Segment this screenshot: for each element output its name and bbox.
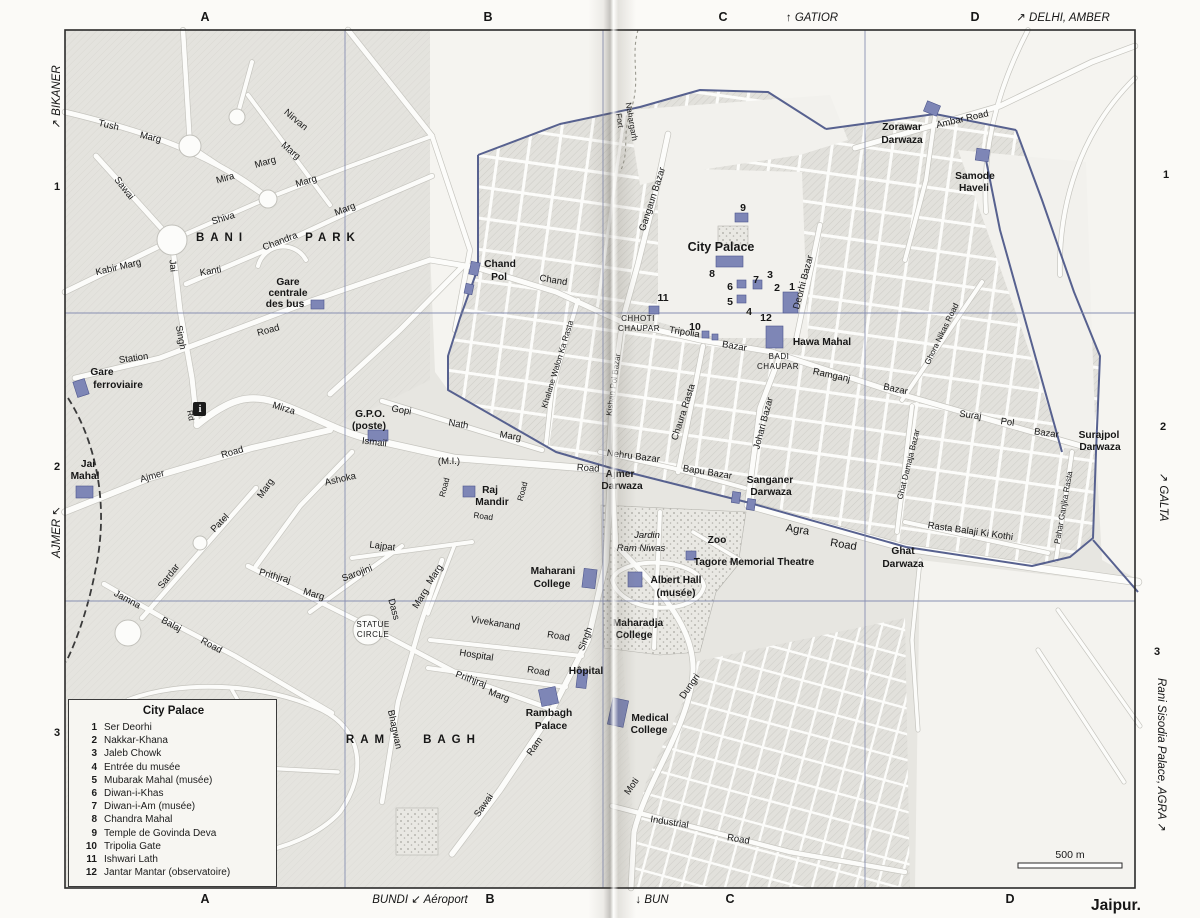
landmark-marker bbox=[735, 213, 748, 222]
legend-item-number: 9 bbox=[77, 827, 97, 840]
landmark-marker bbox=[464, 283, 474, 294]
map-label: Hawa Mahal bbox=[793, 337, 851, 348]
map-label: Rambagh bbox=[526, 708, 572, 719]
legend-item: 9Temple de Govinda Deva bbox=[77, 827, 270, 840]
legend-item-label: Tripolia Gate bbox=[104, 840, 161, 853]
legend-item: 12Jantar Mantar (observatoire) bbox=[77, 866, 270, 879]
rambagh-stipple-block bbox=[396, 808, 438, 855]
map-label: (M.I.) bbox=[438, 456, 460, 467]
map-label: Darwaza bbox=[750, 487, 792, 498]
legend-item: 2Nakkar-Khana bbox=[77, 734, 270, 747]
map-label: 4 bbox=[746, 306, 752, 318]
map-label: Darwaza bbox=[881, 135, 923, 146]
landmark-marker bbox=[311, 300, 324, 309]
legend-list: 1Ser Deorhi2Nakkar-Khana3Jaleb Chowk4Ent… bbox=[77, 721, 270, 879]
map-label: Maharani bbox=[531, 566, 576, 577]
map-label: B bbox=[485, 892, 494, 906]
map-label: 3 bbox=[54, 727, 60, 739]
legend-item: 4Entrée du musée bbox=[77, 761, 270, 774]
map-label: i bbox=[199, 404, 202, 415]
map-label: Raj bbox=[482, 485, 498, 496]
map-label: Darwaza bbox=[601, 481, 643, 492]
map-label: Zorawar bbox=[882, 122, 922, 133]
map-label: City Palace bbox=[688, 240, 755, 254]
map-label: Ajmer bbox=[606, 469, 635, 480]
legend-item-label: Nakkar-Khana bbox=[104, 734, 168, 747]
map-label: Zoo bbox=[708, 535, 727, 546]
map-label: BADI bbox=[769, 352, 790, 361]
map-label: A bbox=[200, 10, 209, 24]
map-label: STATUE bbox=[356, 620, 389, 629]
legend-item-number: 12 bbox=[77, 866, 97, 879]
map-label: ferroviaire bbox=[93, 380, 143, 391]
landmark-marker bbox=[76, 486, 93, 498]
map-label: 7 bbox=[753, 274, 759, 286]
map-label: 1 bbox=[54, 181, 60, 193]
map-label: College bbox=[534, 579, 571, 590]
map-label: 5 bbox=[727, 296, 733, 308]
landmark-marker bbox=[716, 256, 743, 267]
map-label: ↓ BUN bbox=[635, 894, 669, 906]
map-label: CIRCLE bbox=[357, 630, 389, 639]
map-label: Jardin bbox=[633, 530, 660, 541]
legend-item-number: 4 bbox=[77, 761, 97, 774]
map-label: 2 bbox=[54, 461, 60, 473]
map-label: C bbox=[725, 892, 734, 906]
map-label: 8 bbox=[709, 268, 715, 280]
map-label: Tagore Memorial Theatre bbox=[694, 557, 815, 568]
legend-item: 8Chandra Mahal bbox=[77, 813, 270, 826]
legend-item-label: Chandra Mahal bbox=[104, 813, 172, 826]
map-label: Maharadja bbox=[613, 618, 664, 629]
map-label: 11 bbox=[657, 292, 668, 304]
landmark-marker bbox=[737, 295, 746, 303]
map-label: ↗ GALTA bbox=[1157, 473, 1169, 522]
legend-item-number: 3 bbox=[77, 747, 97, 760]
map-label: Haveli bbox=[959, 183, 989, 194]
legend-item-label: Ishwari Lath bbox=[104, 853, 158, 866]
map-label: A bbox=[200, 892, 209, 906]
legend-item-number: 11 bbox=[77, 853, 97, 866]
legend-item: 10Tripolia Gate bbox=[77, 840, 270, 853]
map-label: 3 bbox=[767, 269, 773, 281]
map-label: Jaipur. bbox=[1091, 897, 1141, 914]
landmark-marker bbox=[702, 331, 709, 338]
map-label: Sanganer bbox=[747, 475, 793, 486]
legend-item-label: Ser Deorhi bbox=[104, 721, 152, 734]
map-label: Palace bbox=[535, 721, 568, 732]
landmark-marker bbox=[582, 568, 597, 588]
map-label: ↗ DELHI, AMBER bbox=[1016, 12, 1110, 24]
map-label: CHHOTI bbox=[621, 314, 655, 323]
map-label: D bbox=[1005, 892, 1014, 906]
map-label: BANI bbox=[196, 232, 248, 244]
map-label: des bus bbox=[266, 299, 305, 310]
map-label: C bbox=[718, 10, 727, 24]
map-label: 2 bbox=[1160, 421, 1166, 433]
map-label: 2 bbox=[774, 282, 780, 294]
open-area-southeast bbox=[915, 560, 1135, 888]
map-label: Jai bbox=[81, 459, 95, 470]
legend-item-label: Mubarak Mahal (musée) bbox=[104, 774, 212, 787]
map-label: Rani Sisodia Palace, AGRA ↗ bbox=[1155, 678, 1167, 832]
map-label: Pol bbox=[491, 272, 507, 283]
map-label: Jai bbox=[166, 259, 178, 272]
map-label: Darwaza bbox=[882, 559, 924, 570]
landmark-marker bbox=[746, 498, 755, 510]
legend-item-label: Diwan-i-Am (musée) bbox=[104, 800, 195, 813]
map-label: BAGH bbox=[423, 734, 481, 746]
legend-item: 7Diwan-i-Am (musée) bbox=[77, 800, 270, 813]
legend-item-label: Jaleb Chowk bbox=[104, 747, 161, 760]
map-label: Surajpol bbox=[1079, 430, 1120, 441]
map-label: 12 bbox=[760, 312, 772, 324]
scanned-guidebook-page: ABCD↑ GATIOR↗ DELHI, AMBERABCDBUNDI ↙ Aé… bbox=[0, 0, 1200, 918]
map-label: 1 bbox=[789, 281, 795, 293]
legend-item-label: Diwan-i-Khas bbox=[104, 787, 163, 800]
legend-item-number: 6 bbox=[77, 787, 97, 800]
scale-bar bbox=[1018, 863, 1122, 868]
landmark-marker bbox=[766, 326, 783, 348]
map-label: Ram Niwas bbox=[617, 543, 666, 554]
legend-item-number: 5 bbox=[77, 774, 97, 787]
map-label: centrale bbox=[268, 288, 307, 299]
map-label: Road bbox=[576, 462, 599, 475]
map-label: Pol bbox=[1000, 416, 1015, 429]
map-label: 3 bbox=[1154, 646, 1160, 658]
map-label: Medical bbox=[631, 713, 669, 724]
map-label: 9 bbox=[740, 202, 746, 214]
map-label: Mahal bbox=[71, 471, 100, 482]
legend-item: 3Jaleb Chowk bbox=[77, 747, 270, 760]
map-label: G.P.O. bbox=[355, 409, 385, 420]
map-label: (poste) bbox=[352, 421, 386, 432]
map-label: 6 bbox=[727, 281, 733, 293]
map-label: CHAUPAR bbox=[618, 324, 660, 333]
map-label: Albert Hall bbox=[651, 575, 702, 586]
legend-item: 5Mubarak Mahal (musée) bbox=[77, 774, 270, 787]
map-label: Mandir bbox=[475, 497, 508, 508]
map-label: 500 m bbox=[1055, 849, 1084, 861]
legend-title: City Palace bbox=[77, 705, 270, 717]
city-palace-legend: City Palace 1Ser Deorhi2Nakkar-Khana3Jal… bbox=[68, 699, 277, 887]
landmark-marker bbox=[737, 280, 746, 288]
legend-item: 1Ser Deorhi bbox=[77, 721, 270, 734]
legend-item-number: 2 bbox=[77, 734, 97, 747]
landmark-marker bbox=[975, 148, 990, 162]
landmark-marker bbox=[731, 491, 740, 503]
map-label: Gare bbox=[276, 277, 300, 288]
map-label: College bbox=[631, 725, 668, 736]
landmark-marker bbox=[463, 486, 475, 497]
map-label: AJMER ↖ bbox=[51, 506, 63, 559]
map-label: College bbox=[616, 630, 653, 641]
legend-item-label: Jantar Mantar (observatoire) bbox=[104, 866, 230, 879]
map-label: Ghat bbox=[891, 546, 915, 557]
legend-item-label: Entrée du musée bbox=[104, 761, 180, 774]
map-label: 1 bbox=[1163, 169, 1169, 181]
map-label: Darwaza bbox=[1079, 442, 1121, 453]
landmark-marker bbox=[649, 306, 659, 314]
landmark-marker bbox=[628, 572, 642, 587]
legend-item-number: 8 bbox=[77, 813, 97, 826]
legend-item: 11Ishwari Lath bbox=[77, 853, 270, 866]
legend-item-label: Temple de Govinda Deva bbox=[104, 827, 216, 840]
map-label: Hôpital bbox=[569, 666, 604, 677]
map-label: PARK bbox=[305, 232, 361, 244]
legend-item-number: 1 bbox=[77, 721, 97, 734]
legend-item-number: 10 bbox=[77, 840, 97, 853]
landmark-marker bbox=[712, 334, 718, 340]
map-label: RAM bbox=[346, 734, 390, 746]
legend-item-number: 7 bbox=[77, 800, 97, 813]
map-label: (musée) bbox=[656, 588, 695, 599]
map-label: BUNDI ↙ Aéroport bbox=[372, 894, 468, 906]
map-label: ↑ GATIOR bbox=[786, 12, 838, 24]
map-label: Gare bbox=[90, 367, 114, 378]
map-label: ↗ BIKANER bbox=[51, 65, 63, 128]
map-label: B bbox=[483, 10, 492, 24]
map-label: D bbox=[970, 10, 979, 24]
map-label: CHAUPAR bbox=[757, 362, 799, 371]
map-label: Chand bbox=[484, 259, 516, 270]
map-label: Samode bbox=[955, 171, 995, 182]
legend-item: 6Diwan-i-Khas bbox=[77, 787, 270, 800]
landmark-marker bbox=[538, 686, 558, 706]
